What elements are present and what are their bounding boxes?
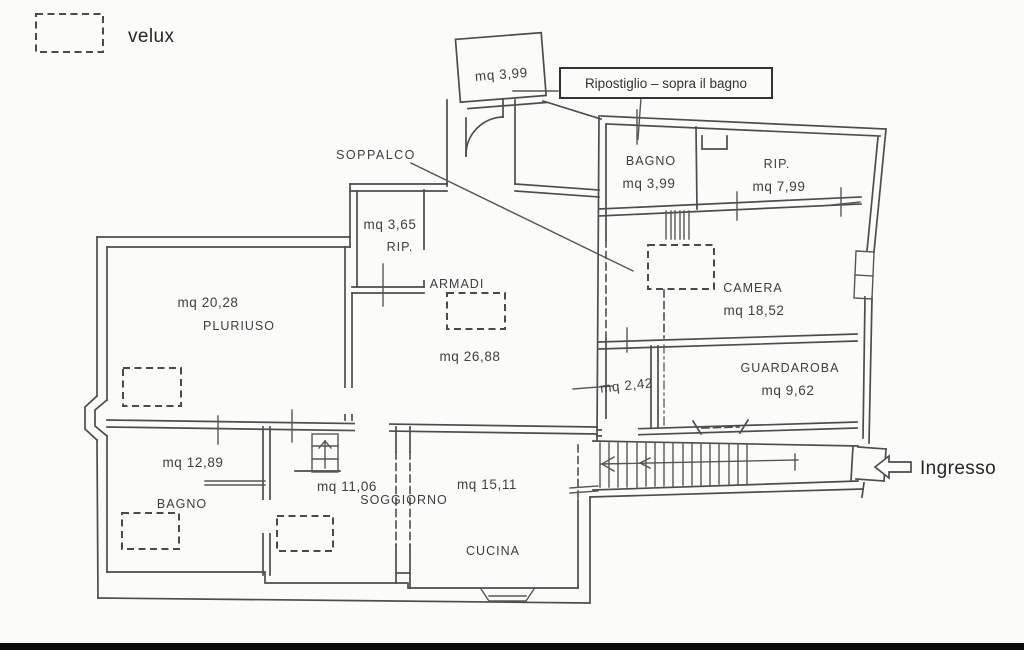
ingresso-annotation: Ingresso (875, 456, 996, 479)
pluriuso-area: mq 20,28 (177, 295, 238, 310)
camera-area: mq 18,52 (723, 303, 784, 318)
velux-legend: velux (36, 14, 174, 52)
bagno-area: mq 12,89 (162, 455, 223, 470)
camera-name: CAMERA (723, 281, 782, 295)
ingresso-label: Ingresso (920, 458, 996, 479)
soggiorno-area: mq 11,06 (317, 479, 377, 494)
rip-piccolo-name: RIP. (387, 240, 414, 254)
stair-direction-arrow (600, 454, 798, 471)
ingresso-arrow-icon (875, 456, 911, 478)
radiator-icon (205, 481, 265, 485)
velux-box-armadi (447, 293, 505, 329)
top-room: mq 3,99 (455, 33, 546, 110)
soppalco-label: SOPPALCO (336, 148, 416, 162)
velux-legend-label: velux (128, 26, 174, 47)
window-icon (854, 251, 874, 299)
staircase (593, 441, 858, 487)
ripostiglio-callout-text: Ripostiglio – sopra il bagno (585, 76, 747, 91)
rip-sopra-name: RIP. (764, 157, 791, 171)
rip-piccolo-area: mq 3,65 (364, 217, 417, 232)
velux-box-soggiorno (277, 516, 333, 551)
guardaroba-area: mq 9,62 (762, 383, 815, 398)
cucina-area: mq 15,11 (457, 477, 517, 492)
floorplan-page: mq 3,99 Ripostiglio – sopra il bagno SOP… (0, 0, 1024, 650)
velux-legend-swatch (36, 14, 103, 52)
soggiorno-name: SOGGIORNO (360, 493, 447, 507)
sink-bay-icon (481, 589, 534, 601)
velux-box-camera (648, 245, 714, 289)
small-stair-icon (312, 434, 338, 472)
top-room-area: mq 3,99 (474, 65, 528, 84)
armadi-label: ARMADI (430, 277, 485, 291)
soppalco-room-area: mq 26,88 (439, 349, 500, 364)
rip-sopra-area: mq 7,99 (753, 179, 806, 194)
bagno-sopra-area: mq 3,99 (623, 176, 676, 191)
soppalco-annotation: SOPPALCO (336, 148, 633, 271)
door-arc-icon (466, 117, 503, 156)
velux-box-pluriuso (123, 368, 181, 406)
bagno-name: BAGNO (157, 497, 207, 511)
stair-treads (600, 443, 747, 487)
ladder-hatch-icon (664, 211, 689, 338)
bagno-sopra-name: BAGNO (626, 154, 676, 168)
floorplan-drawing: mq 3,99 Ripostiglio – sopra il bagno SOP… (0, 0, 1024, 650)
disimpegno-area: mq 2,42 (599, 375, 653, 395)
soppalco-leader-line (411, 163, 633, 271)
guardaroba-name: GUARDAROBA (741, 361, 840, 375)
velux-box-bagno (122, 513, 179, 549)
bottom-border-bar (0, 643, 1024, 650)
pluriuso-name: PLURIUSO (203, 319, 275, 333)
cucina-name: CUCINA (466, 544, 520, 558)
